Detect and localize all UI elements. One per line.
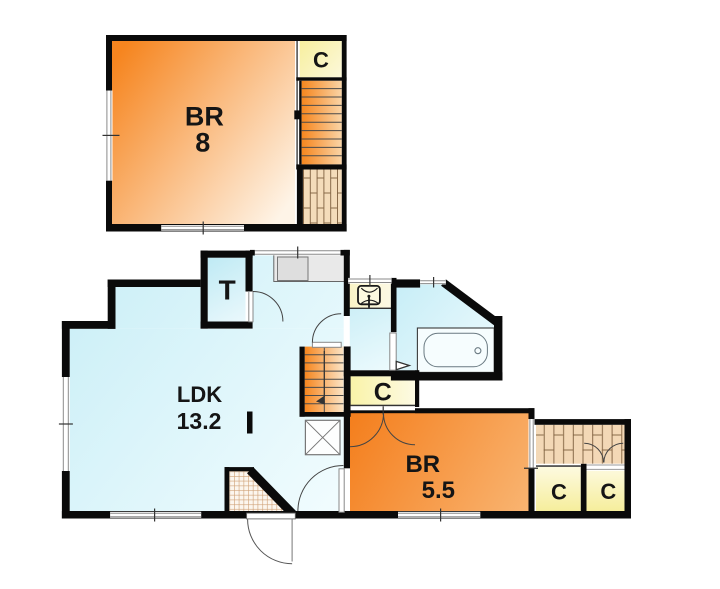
svg-text:C: C bbox=[313, 47, 329, 72]
svg-text:LDK: LDK bbox=[177, 382, 222, 407]
svg-text:C: C bbox=[600, 479, 616, 504]
svg-text:T: T bbox=[219, 274, 236, 305]
svg-text:C: C bbox=[551, 479, 567, 504]
svg-text:13.2: 13.2 bbox=[177, 408, 222, 434]
svg-text:5.5: 5.5 bbox=[422, 477, 455, 504]
svg-text:C: C bbox=[374, 379, 392, 407]
svg-text:8: 8 bbox=[195, 127, 210, 157]
svg-text:BR: BR bbox=[405, 451, 440, 478]
